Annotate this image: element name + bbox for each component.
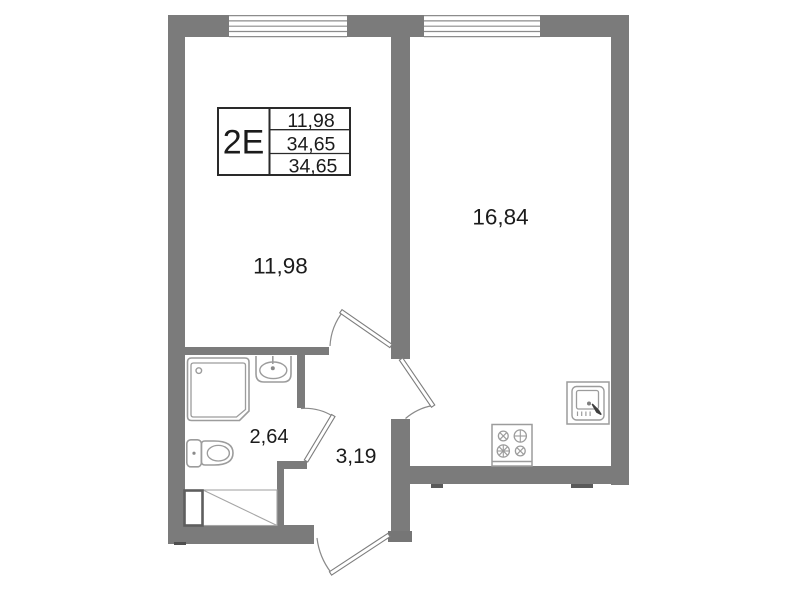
svg-text:16,84: 16,84 [472,204,528,229]
svg-text:3,19: 3,19 [336,445,377,468]
svg-text:2,64: 2,64 [250,426,289,448]
svg-text:11,98: 11,98 [253,253,308,278]
svg-text:11,98: 11,98 [287,110,334,132]
svg-text:34,65: 34,65 [287,133,336,155]
svg-text:34,65: 34,65 [289,155,338,177]
svg-text:2E: 2E [223,124,265,162]
